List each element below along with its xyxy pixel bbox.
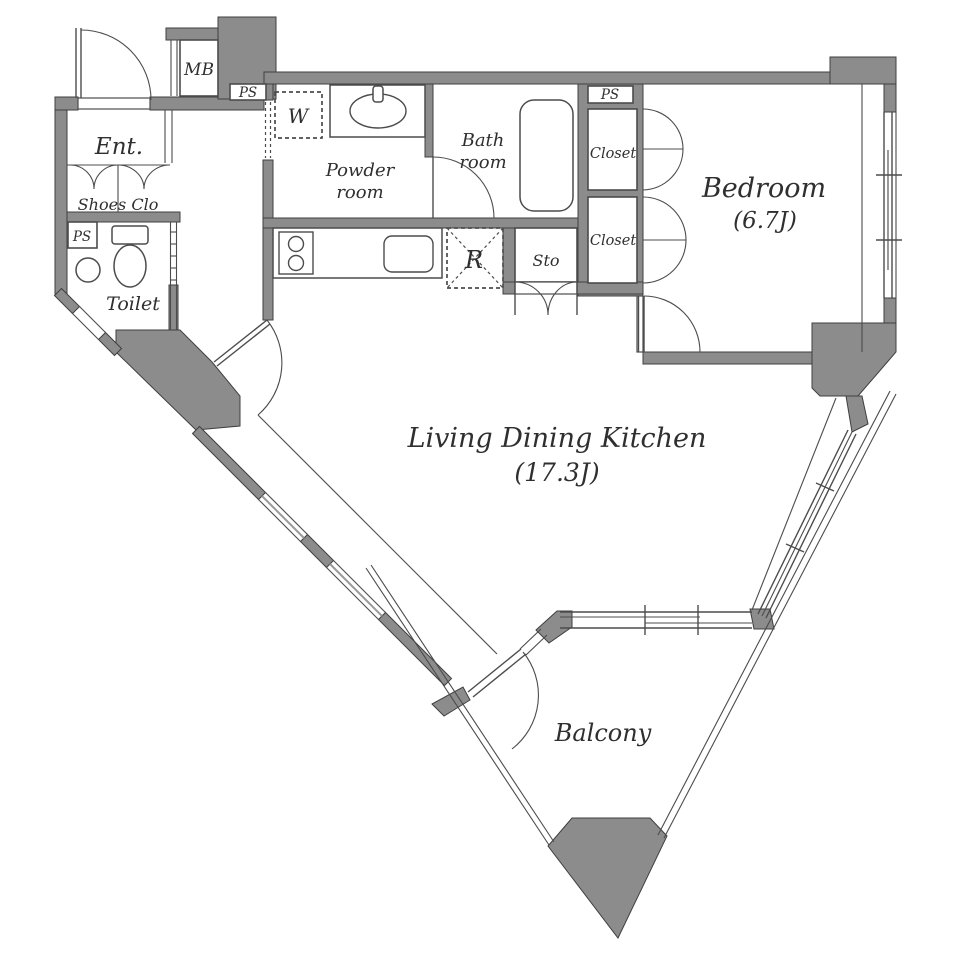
- toilet-tank: [112, 226, 148, 244]
- wall-meterbox-top: [166, 28, 220, 40]
- toilet-bowl: [114, 245, 146, 287]
- ent-hall-divider: [165, 110, 172, 163]
- wall-sto-post-left: [503, 282, 515, 294]
- ldk-wall-inner-face-right: [752, 398, 836, 610]
- washbasin-faucet: [373, 86, 383, 102]
- label-entrance: Ent.: [94, 134, 143, 160]
- wall-right-upper: [884, 84, 896, 112]
- wall-ldk-diagonal-b: [301, 535, 334, 568]
- wall-left: [55, 97, 67, 294]
- wall-diagonal-tail: [846, 396, 868, 432]
- label-balcony: Balcony: [554, 719, 652, 747]
- toilet-hand-basin: [76, 258, 100, 282]
- label-pipe-space-top: PS: [238, 85, 257, 101]
- interior-walls: [67, 84, 812, 364]
- wall-ldk-diagonal-c: [379, 613, 452, 686]
- wall-hall-kitchen: [263, 160, 273, 320]
- label-shoes-closet: Shoes Clo: [78, 195, 159, 214]
- toilet-window: [73, 307, 106, 340]
- label-pipe-space-toilet: PS: [72, 229, 91, 245]
- wall-powder-bath: [425, 84, 433, 157]
- label-bedroom-size: (6.7J): [733, 208, 797, 234]
- bedroom-window: [876, 112, 902, 298]
- wall-sto-left: [503, 228, 515, 282]
- label-pipe-space-bedroom: PS: [600, 87, 619, 103]
- label-closet-lower: Closet: [590, 233, 636, 249]
- bathtub: [520, 100, 573, 211]
- label-toilet: Toilet: [106, 293, 160, 315]
- label-refrigerator-space: R: [464, 246, 483, 274]
- entrance-door: [76, 28, 151, 100]
- pillar-left-diagonal: [116, 330, 240, 430]
- entry-threshold: [78, 98, 150, 109]
- ldk-diagonal-window-upper: [259, 493, 308, 542]
- wall-bedroom-bottom: [643, 352, 812, 364]
- wall-balcony-door-hinge-post: [432, 687, 470, 716]
- balcony-door: [468, 649, 538, 749]
- wall-kitchen-top: [263, 218, 587, 228]
- wall-balcony-elbow-left: [536, 611, 572, 643]
- powder-room-sliding-door-marks: [266, 102, 271, 158]
- label-meter-box: MB: [183, 60, 214, 80]
- kitchen-counter: [273, 228, 442, 278]
- wall-entry-jamb-left: [55, 97, 78, 110]
- meter-box-shaft: [171, 40, 177, 96]
- label-bathroom-1: Bath: [461, 130, 505, 151]
- pillar-bottom-right: [812, 323, 896, 396]
- closet-lower-bifold-doors: [643, 197, 686, 283]
- bedroom-door: [639, 296, 701, 352]
- floor-plan: Ent. Shoes Clo Toilet MB PS PS PS W Powd…: [0, 0, 960, 959]
- label-ldk: Living Dining Kitchen: [407, 423, 707, 454]
- balcony-tip-pillar: [548, 818, 667, 938]
- label-bedroom: Bedroom: [701, 173, 826, 204]
- wall-top-right-step: [830, 57, 896, 84]
- label-closet-upper: Closet: [590, 146, 636, 162]
- label-storage: Sto: [532, 251, 559, 270]
- wall-ldk-diagonal-a: [193, 427, 266, 500]
- label-washer-space: W: [288, 104, 310, 128]
- washbasin-counter: [330, 85, 425, 137]
- wall-top: [264, 72, 832, 84]
- label-powder-room-1: Powder: [325, 160, 396, 181]
- label-powder-room-2: room: [336, 182, 383, 203]
- balcony-sliding-window-horizontal: [560, 605, 752, 635]
- closet-upper-bifold-doors: [643, 109, 683, 190]
- ldk-diagonal-window-lower: [327, 561, 386, 620]
- label-bathroom-2: room: [459, 152, 506, 173]
- floor-plan-drawing: Ent. Shoes Clo Toilet MB PS PS PS W Powd…: [0, 0, 960, 959]
- balcony-sliding-door-diagonal: [758, 430, 856, 618]
- label-ldk-size: (17.3J): [514, 458, 599, 487]
